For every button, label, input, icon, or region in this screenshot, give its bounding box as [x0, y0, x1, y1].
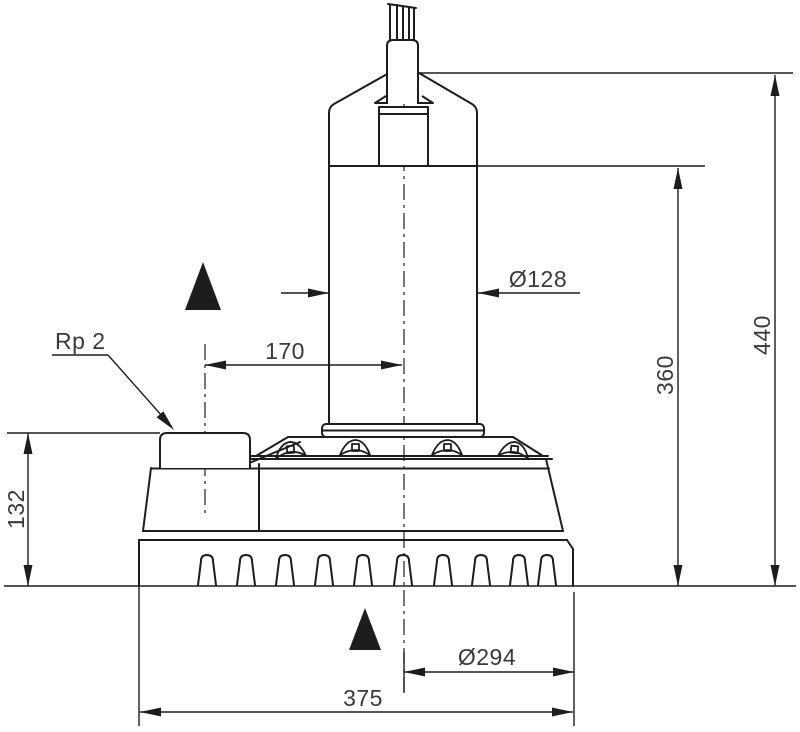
- motor-flange: [322, 424, 484, 437]
- dim-base-diameter: Ø294: [404, 644, 574, 677]
- pump-dimension-drawing: Ø128 170 Rp 2 132 360 440: [0, 0, 800, 732]
- arrowhead: [674, 168, 683, 189]
- volute-housing: [139, 459, 567, 540]
- arrowhead: [140, 708, 161, 717]
- centerlines: [205, 68, 404, 696]
- dim-label-base-diameter: Ø294: [458, 644, 516, 670]
- latch-clip: [432, 440, 462, 455]
- dim-label-port-height: 132: [3, 489, 29, 529]
- motor-body: [329, 166, 477, 424]
- dim-label-port-offset: 170: [265, 338, 305, 364]
- min-water-level-triangle-lower: [349, 608, 381, 650]
- dim-overall-width: 375: [140, 685, 573, 717]
- extension-lines: [4, 73, 796, 726]
- gland-block: [379, 107, 428, 166]
- min-water-level-triangle-upper: [185, 262, 221, 310]
- dim-motor-diameter: Ø128: [281, 266, 580, 298]
- dim-port-offset: 170: [205, 338, 402, 370]
- dim-port-height: 132: [3, 433, 33, 586]
- arrowhead: [674, 565, 683, 586]
- arrowhead: [205, 361, 226, 370]
- arrowhead: [308, 289, 329, 298]
- dim-label-overall-width: 375: [343, 685, 383, 711]
- dim-label-total-height: 440: [749, 315, 775, 355]
- clamp-band: [245, 437, 552, 464]
- power-cable: [388, 4, 416, 41]
- arrowhead: [552, 708, 573, 717]
- arrowhead: [478, 289, 499, 298]
- arrowhead: [24, 433, 33, 454]
- arrowhead: [24, 565, 33, 586]
- dim-height-to-motor-top: 360: [652, 168, 683, 586]
- arrowhead: [553, 668, 574, 677]
- connection-label: Rp 2: [55, 328, 106, 354]
- latch-clip: [340, 440, 370, 455]
- dim-total-height: 440: [749, 75, 780, 586]
- connection-callout: Rp 2: [52, 328, 174, 430]
- dim-label-height-to-motor-top: 360: [652, 355, 678, 395]
- arrowhead: [771, 565, 780, 586]
- cable-boot: [387, 40, 418, 104]
- arrowhead: [157, 411, 174, 430]
- discharge-port: [160, 433, 250, 468]
- cable-gland: [375, 40, 433, 166]
- arrowhead: [771, 75, 780, 96]
- dim-label-motor-diameter: Ø128: [509, 266, 567, 292]
- arrowhead: [404, 668, 425, 677]
- suction-slots: [198, 555, 556, 585]
- arrowhead: [381, 361, 402, 370]
